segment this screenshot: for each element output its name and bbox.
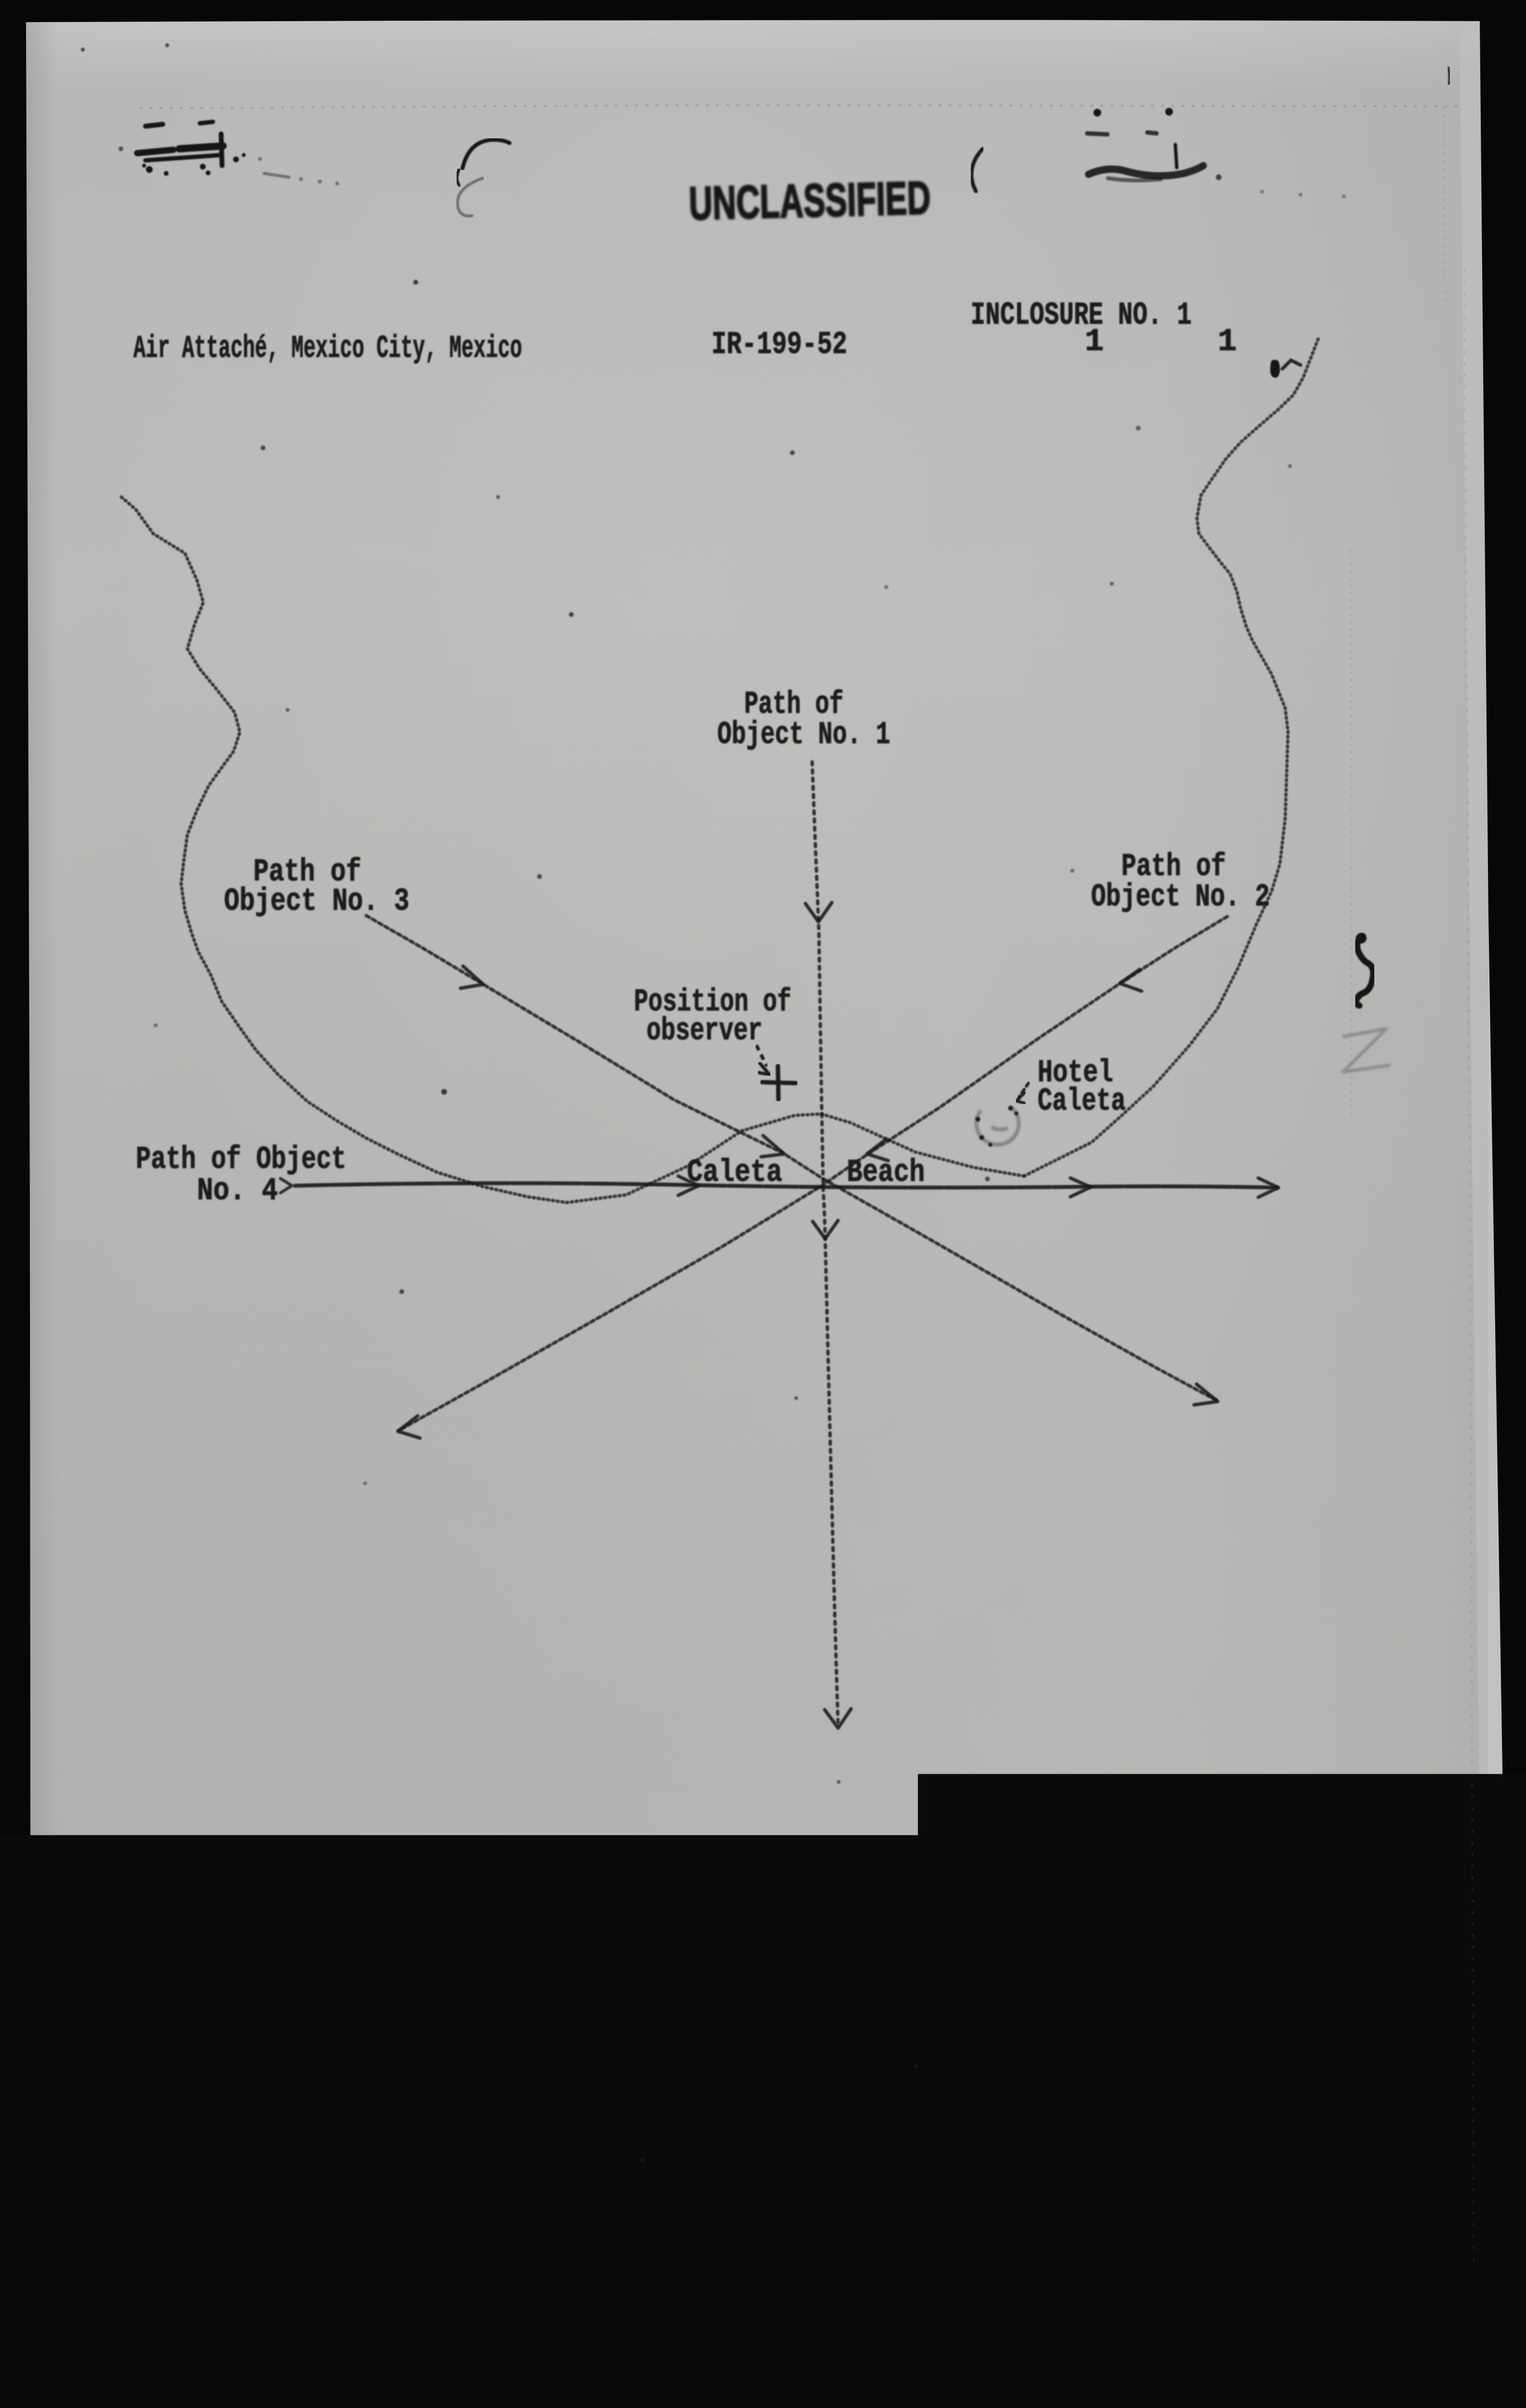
svg-text:Object No. 1: Object No. 1: [717, 717, 890, 753]
svg-text:IR-199-52: IR-199-52: [711, 327, 847, 363]
svg-text:Path of Object: Path of Object: [136, 1141, 346, 1178]
svg-text:INCLOSURE NO. 1: INCLOSURE NO. 1: [971, 297, 1192, 333]
svg-text:No. 4: No. 4: [197, 1173, 278, 1209]
svg-text:Object No. 2: Object No. 2: [1091, 879, 1270, 915]
svg-text:observer: observer: [646, 1013, 763, 1049]
svg-text:Air Attaché, Mexico City, Mexi: Air Attaché, Mexico City, Mexico: [133, 330, 522, 366]
svg-text:1: 1: [1218, 324, 1237, 360]
svg-text:74380: 74380: [1356, 1982, 1443, 2175]
svg-text:Caleta: Caleta: [687, 1154, 782, 1191]
svg-text:1: 1: [1085, 324, 1104, 360]
svg-text:Beach: Beach: [847, 1154, 925, 1191]
svg-text:Caleta: Caleta: [1038, 1083, 1126, 1119]
svg-text:Object No. 3: Object No. 3: [224, 883, 409, 919]
svg-text:ATIC: ATIC: [1386, 1888, 1440, 1977]
svg-text:UNCLASSIFIED: UNCLASSIFIED: [688, 171, 932, 230]
